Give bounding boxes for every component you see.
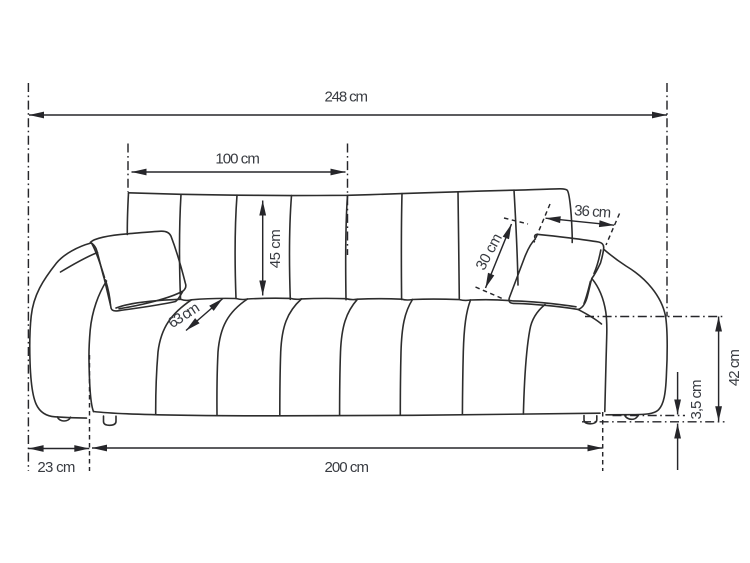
svg-text:248 cm: 248 cm bbox=[324, 89, 368, 106]
svg-text:23 cm: 23 cm bbox=[37, 459, 75, 476]
svg-text:200 cm: 200 cm bbox=[324, 459, 369, 476]
svg-text:100 cm: 100 cm bbox=[215, 150, 260, 167]
svg-text:42 cm: 42 cm bbox=[726, 349, 743, 386]
svg-text:3,5 cm: 3,5 cm bbox=[688, 380, 705, 420]
svg-text:45 cm: 45 cm bbox=[267, 229, 284, 268]
svg-text:36 cm: 36 cm bbox=[574, 202, 612, 222]
